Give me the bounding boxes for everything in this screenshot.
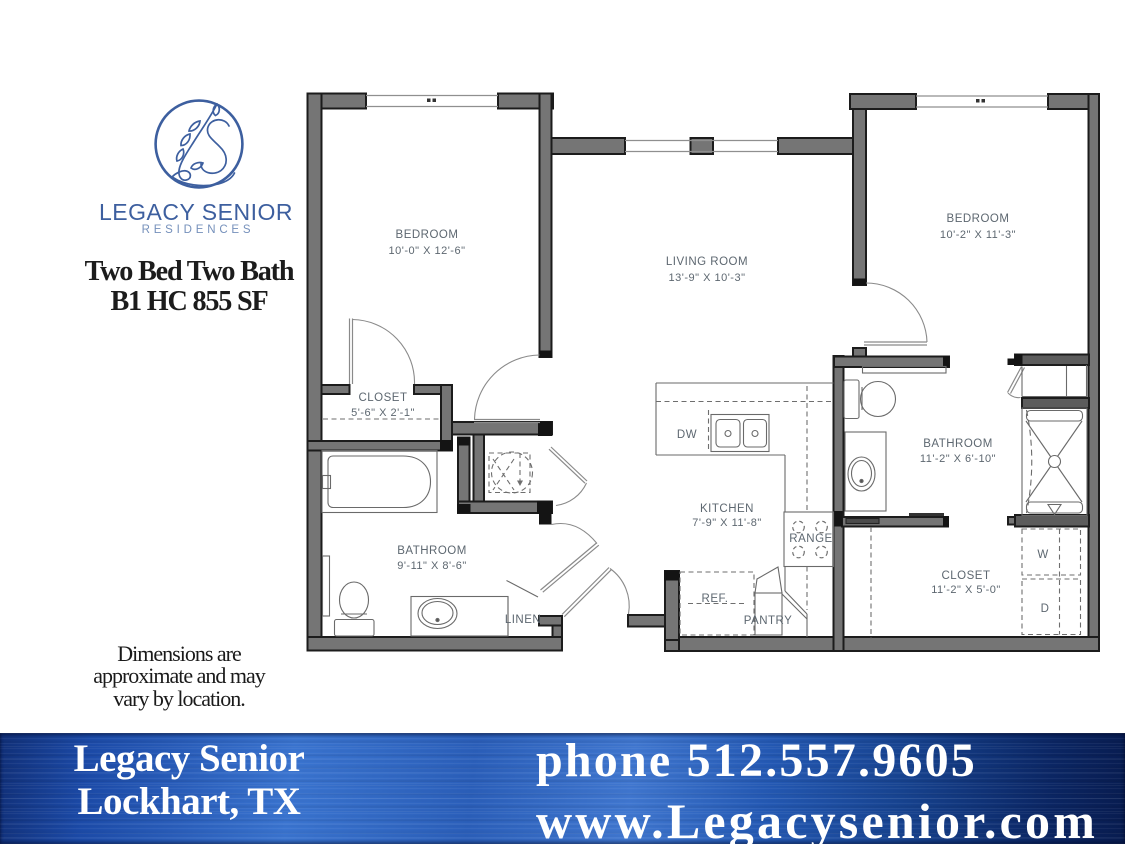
svg-text:10'-2" X 11'-3": 10'-2" X 11'-3" [940,229,1016,241]
svg-text:BEDROOM: BEDROOM [396,229,459,241]
svg-text:BATHROOM: BATHROOM [397,545,467,557]
svg-text:11'-2" X 6'-10": 11'-2" X 6'-10" [920,453,996,465]
svg-text:11'-2" X 5'-0": 11'-2" X 5'-0" [931,584,1001,596]
svg-text:BEDROOM: BEDROOM [947,213,1010,225]
svg-text:13'-9" X 10'-3": 13'-9" X 10'-3" [669,272,746,284]
svg-text:D: D [1041,603,1050,615]
svg-text:7'-9" X 11'-8": 7'-9" X 11'-8" [692,517,762,529]
svg-text:BATHROOM: BATHROOM [923,438,993,450]
svg-text:W: W [1037,549,1048,561]
svg-text:CLOSET: CLOSET [358,392,407,404]
svg-text:10'-0" X 12'-6": 10'-0" X 12'-6" [389,245,466,257]
svg-text:5'-6" X 2'-1": 5'-6" X 2'-1" [351,407,415,419]
svg-text:RANGE: RANGE [789,533,832,545]
svg-text:LINEN: LINEN [505,614,541,626]
svg-text:DW: DW [677,429,697,441]
svg-text:KITCHEN: KITCHEN [700,503,754,515]
svg-text:9'-11" X 8'-6": 9'-11" X 8'-6" [397,560,467,572]
svg-text:PANTRY: PANTRY [744,615,793,627]
svg-text:LIVING ROOM: LIVING ROOM [666,256,748,268]
svg-text:CLOSET: CLOSET [941,570,990,582]
svg-text:REF.: REF. [702,593,729,605]
